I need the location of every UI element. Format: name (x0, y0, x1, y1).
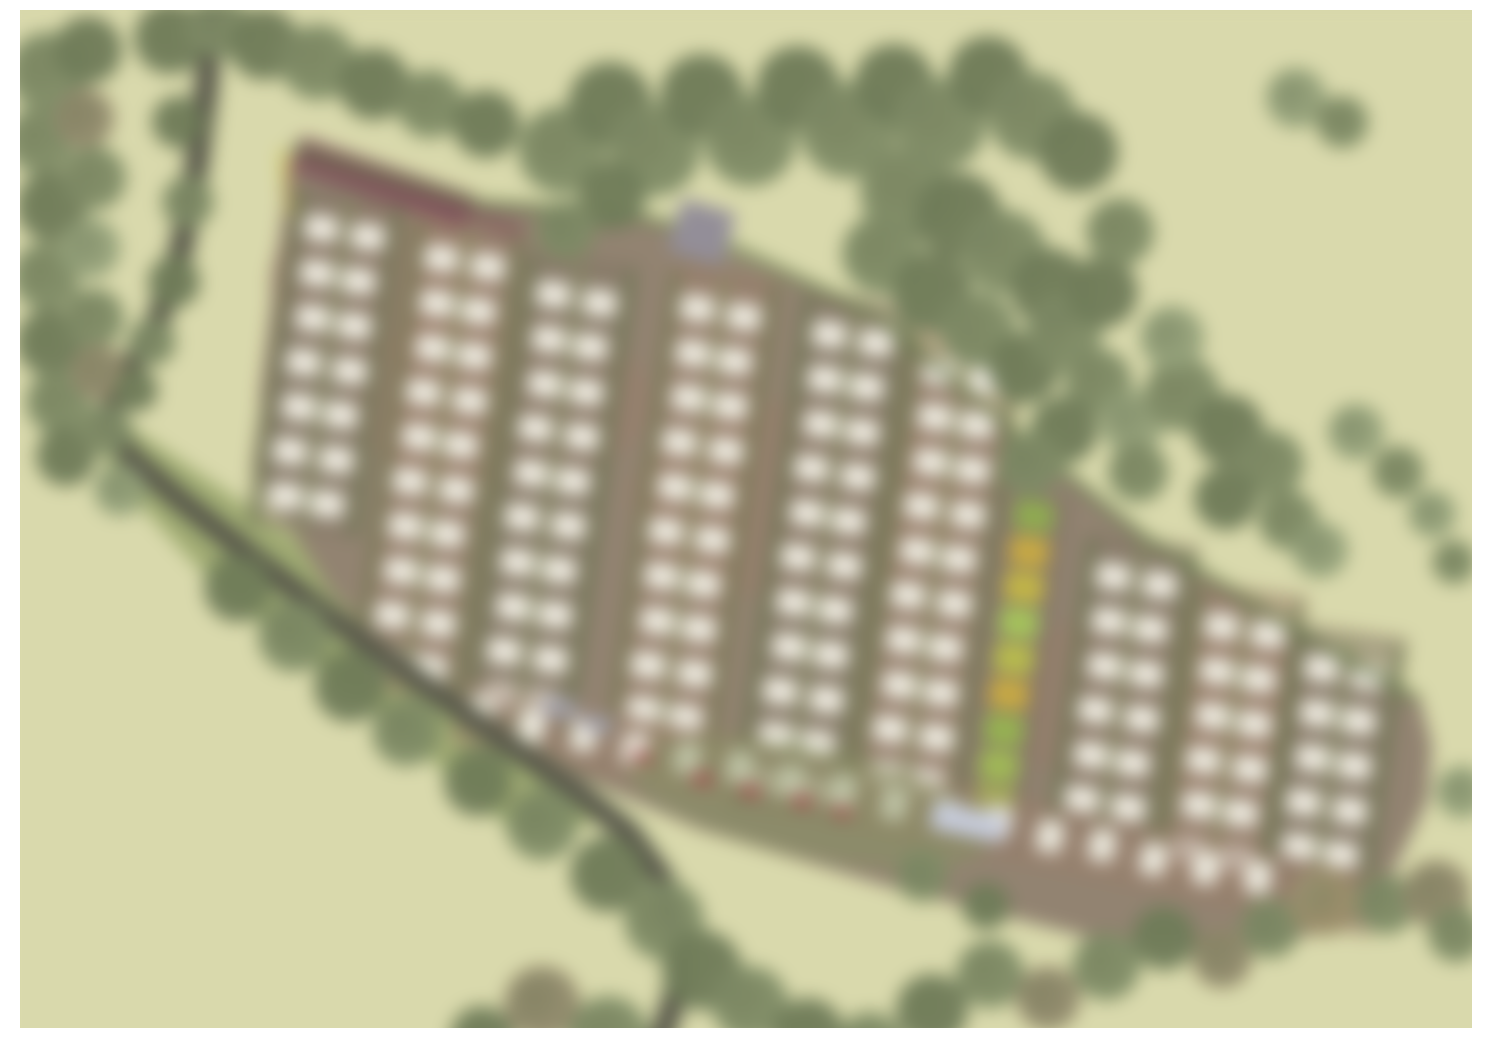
site-plan-map (20, 10, 1472, 1028)
plan-sheet (0, 0, 1496, 1054)
wash-overlay (20, 10, 1472, 1028)
site-plan-drawing (20, 10, 1472, 1028)
plan-illustration (20, 10, 1472, 1028)
